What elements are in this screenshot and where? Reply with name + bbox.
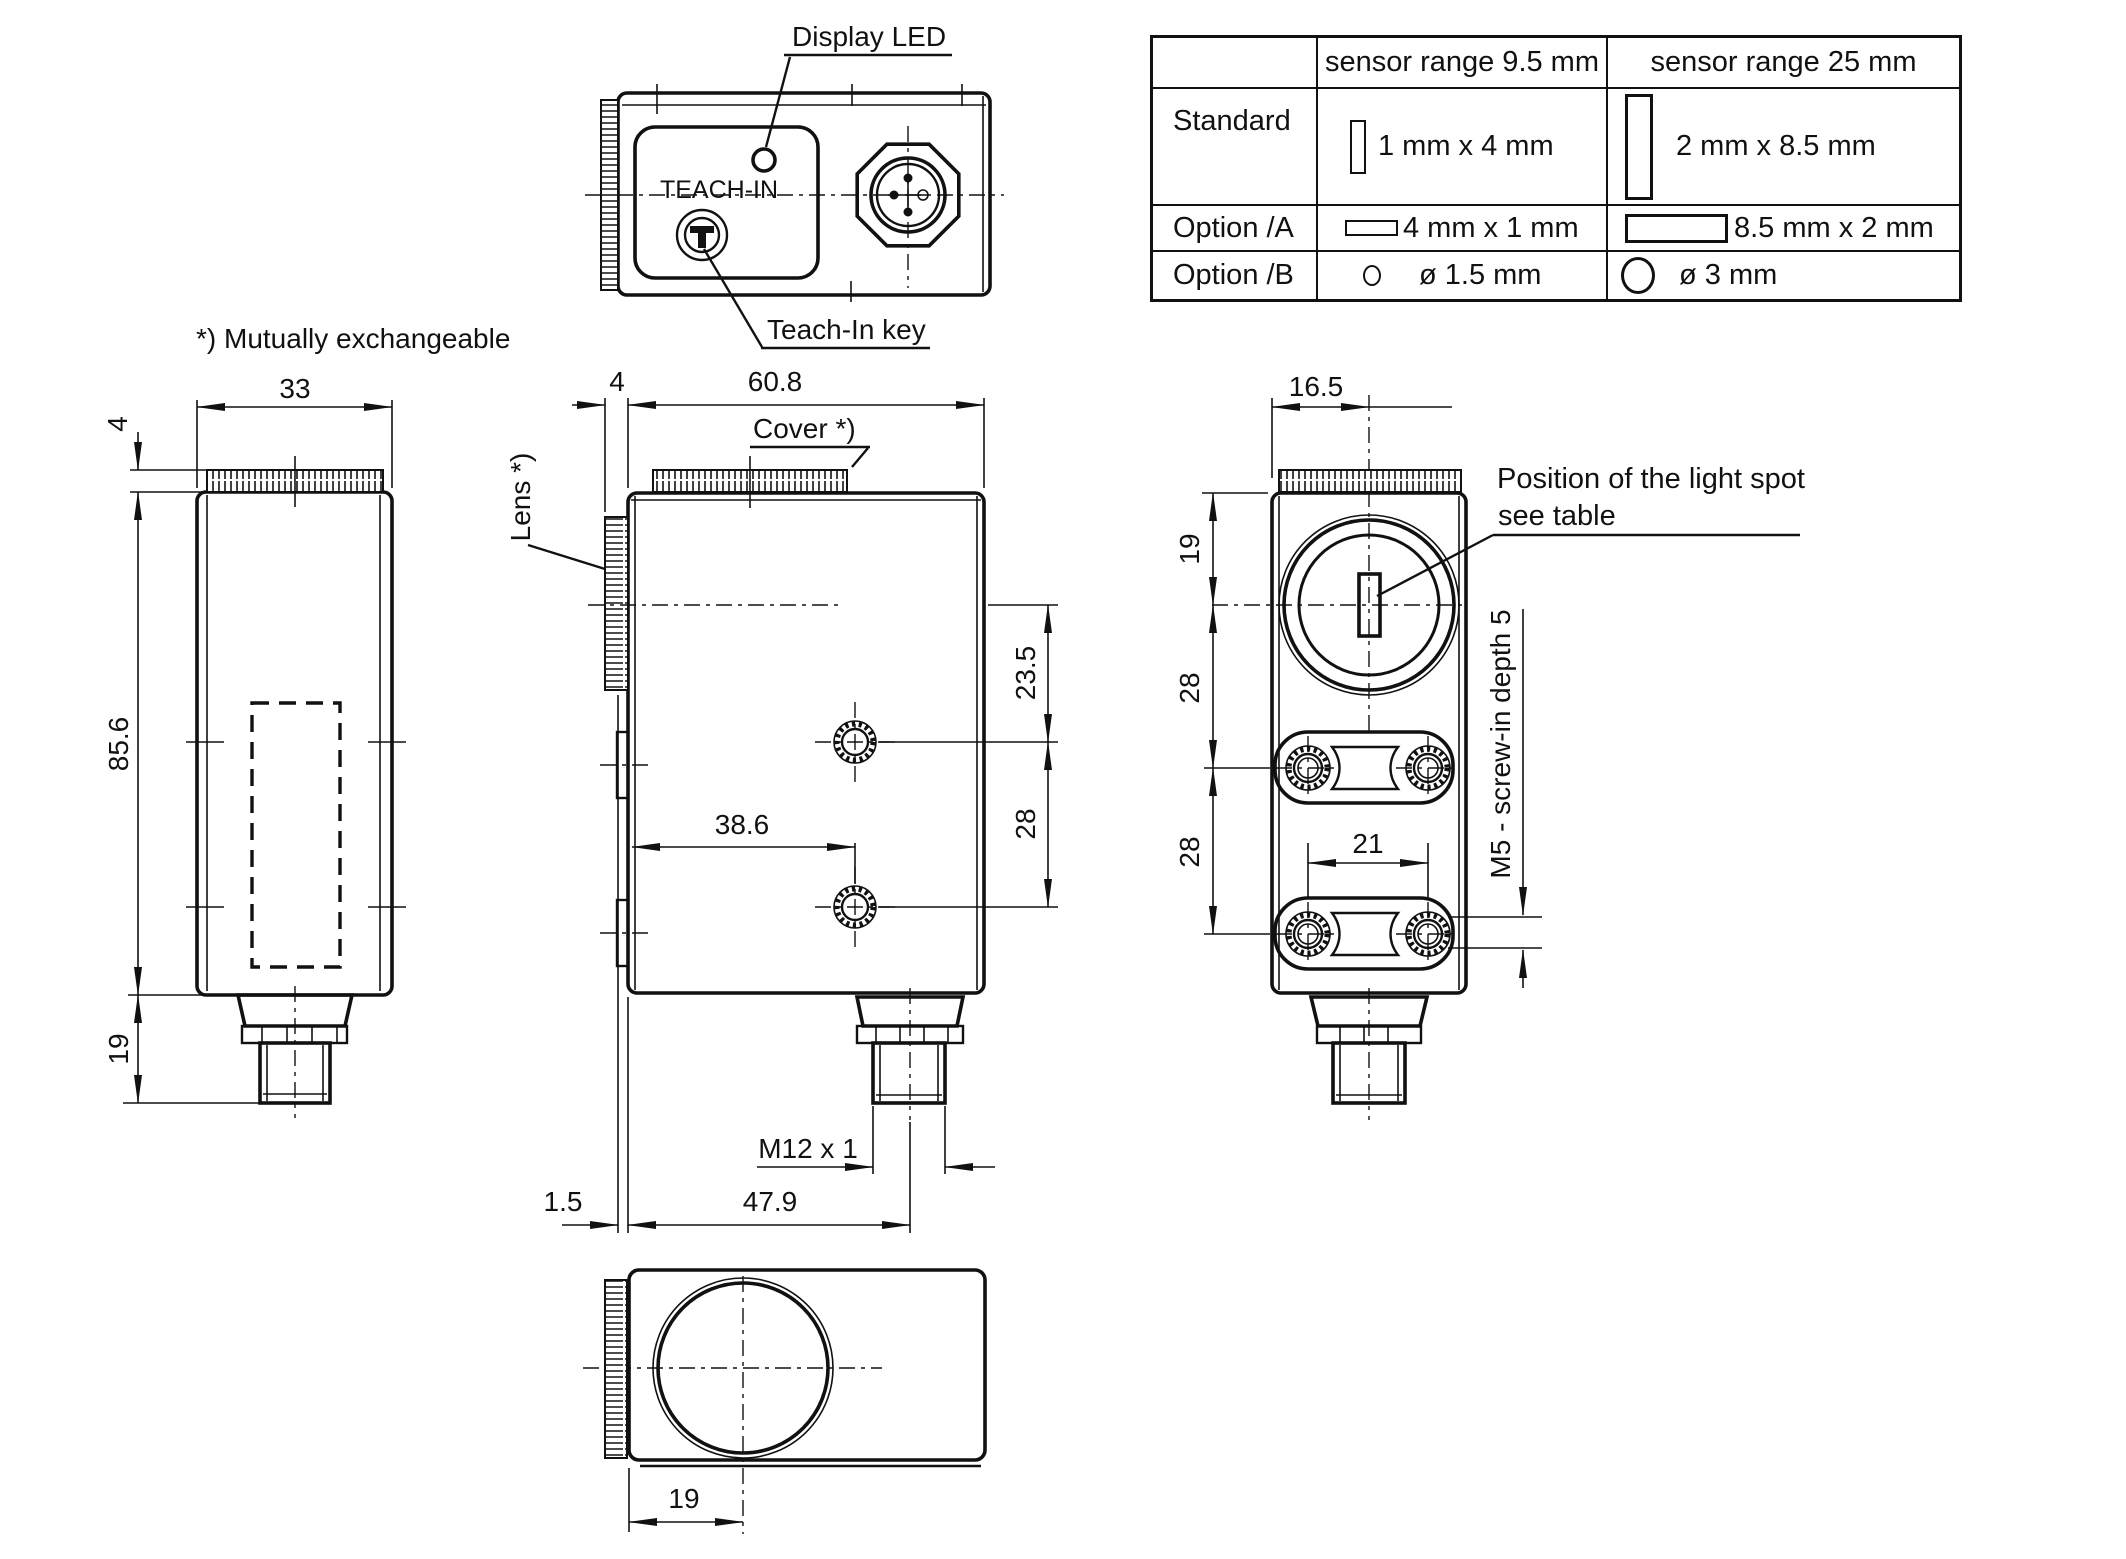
lens-face [1279,515,1459,695]
dim-4-side: 4 [102,416,133,432]
row-label-option-a: Option /A [1153,204,1316,250]
table-corner-cell [1153,38,1316,87]
dim-16-5: 16.5 [1289,371,1344,402]
face-view: 16.5 19 28 28 21 M5 - screw-in depth 5 P… [1174,371,1805,1120]
aperture-icon-circle-small [1363,265,1381,286]
label-window-dashed [252,703,340,967]
dim-23-5: 23.5 [1010,646,1041,701]
technical-drawing-page: TEACH-IN Display LED Teach-In key [0,0,2126,1559]
aperture-icon-slit-horizontal-large [1625,214,1728,243]
dim-19-face: 19 [1174,533,1205,564]
lens-ring-knurl-bottom [605,1280,627,1458]
cell-option-b-9-5: ø 1.5 mm [1316,250,1606,299]
teach-in-key-label: Teach-In key [767,314,926,345]
dim-28-face-2: 28 [1174,836,1205,867]
dim-19-bottom: 19 [668,1483,699,1514]
cover-label: Cover *) [753,413,856,444]
mutually-exchangeable-note: *) Mutually exchangeable [196,323,510,354]
m12-connector-top [857,144,959,246]
dim-38-6: 38.6 [715,809,770,840]
t-key-icon [690,226,714,248]
cell-option-a-25: 8.5 mm x 2 mm [1606,204,1959,250]
cell-standard-9-5: 1 mm x 4 mm [1316,87,1606,204]
dim-21: 21 [1352,828,1383,859]
m12-connector-side [238,986,352,1118]
dim-47-9: 47.9 [743,1186,798,1217]
dim-28-face-1: 28 [1174,672,1205,703]
m5-callout: M5 - screw-in depth 5 [1448,609,1542,988]
aperture-icon-circle-large [1621,257,1655,294]
aperture-icon-slit-vertical-large [1625,94,1653,200]
m12-connector-face [1311,988,1427,1120]
display-led-label: Display LED [792,21,946,52]
cell-standard-25: 2 mm x 8.5 mm [1606,87,1959,204]
left-side-view: 33 4 85.6 19 [102,373,406,1118]
cell-option-a-9-5: 4 mm x 1 mm [1316,204,1606,250]
bottom-view: 19 [583,1270,985,1534]
table-header-range-25: sensor range 25 mm [1606,38,1959,87]
light-spot-label-1: Position of the light spot [1497,463,1805,495]
teach-in-key [677,210,727,260]
dim-33: 33 [279,373,310,404]
row-label-option-b: Option /B [1153,250,1316,299]
lens-knurl [605,517,628,690]
m12-label: M12 x 1 [758,1133,858,1164]
aperture-icon-slit-vertical-small [1350,120,1366,174]
lens-ring-knurl-face [1279,470,1461,492]
main-view: 23.5 28 38.6 4 60.8 Cover *) Lens *) [505,366,1058,1233]
display-led [753,149,775,171]
dim-4-front: 4 [609,366,625,397]
dim-28-front: 28 [1010,808,1041,839]
m5-label: M5 - screw-in depth 5 [1485,609,1516,878]
mounting-slot-lower [1275,898,1460,969]
cover-callout: Cover *) [750,413,870,467]
dim-85-6: 85.6 [103,717,134,772]
top-view: TEACH-IN Display LED Teach-In key [585,21,1004,348]
dim-60-8: 60.8 [748,366,803,397]
mounting-slot-upper [1275,732,1460,803]
teach-in-label: TEACH-IN [660,176,778,204]
lens-ring-knurl [601,100,618,290]
lens-callout: Lens *) [505,453,605,569]
m12-connector-front [857,988,963,1120]
dim-19-side: 19 [103,1033,134,1064]
aperture-icon-slit-horizontal-small [1345,220,1398,236]
dim-1-5: 1.5 [544,1186,583,1217]
lens-label: Lens *) [505,453,536,542]
table-header-range-9-5: sensor range 9.5 mm [1316,38,1606,87]
light-spot-table: sensor range 9.5 mm sensor range 25 mm S… [1150,35,1962,302]
light-spot-label-2: see table [1498,500,1616,532]
row-label-standard: Standard [1153,87,1316,204]
cell-option-b-25: ø 3 mm [1606,250,1959,299]
